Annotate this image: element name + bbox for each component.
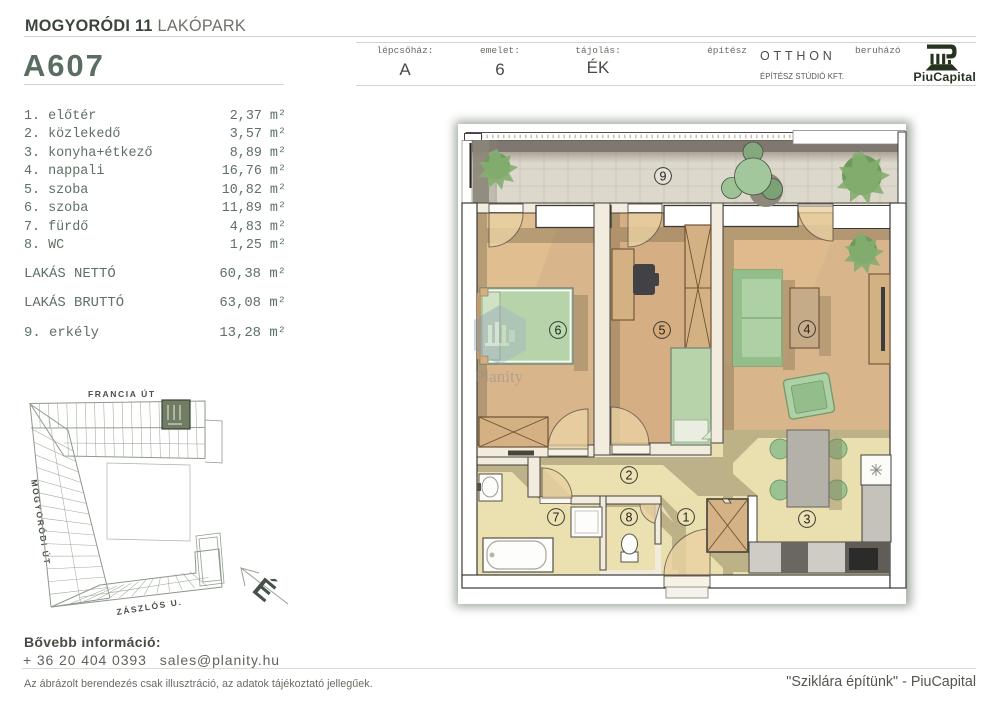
svg-text:1: 1	[683, 511, 690, 525]
svg-text:Planity: Planity	[475, 367, 524, 386]
svg-text:MOGYORÓDI ÚT: MOGYORÓDI ÚT	[29, 479, 53, 566]
svg-text:5: 5	[659, 324, 666, 338]
svg-text:9: 9	[660, 170, 667, 184]
svg-text:7: 7	[553, 511, 560, 525]
svg-text:FRANCIA ÚT: FRANCIA ÚT	[88, 388, 156, 399]
svg-text:8: 8	[626, 511, 633, 525]
svg-text:6: 6	[555, 324, 562, 338]
svg-text:4: 4	[804, 323, 811, 337]
svg-text:3: 3	[804, 513, 811, 527]
svg-text:ZÁSZLÓS U.: ZÁSZLÓS U.	[116, 596, 183, 617]
svg-text:2: 2	[626, 469, 633, 483]
